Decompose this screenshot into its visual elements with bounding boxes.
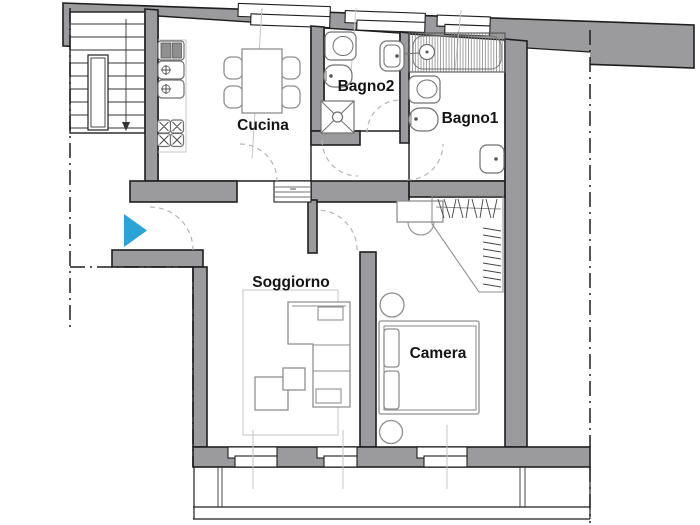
bathtub-icon bbox=[404, 33, 505, 72]
window-camera bbox=[417, 447, 467, 467]
oven-icon bbox=[158, 80, 184, 98]
washbasin-icon bbox=[480, 145, 504, 173]
camera-label: Camera bbox=[410, 345, 467, 362]
chair bbox=[224, 57, 243, 79]
bagno1-label: Bagno1 bbox=[442, 110, 499, 127]
washbasin-icon bbox=[380, 41, 404, 71]
entrance-arrow-icon bbox=[124, 214, 147, 247]
camera-door-arc bbox=[317, 210, 357, 250]
window-cucina bbox=[238, 3, 331, 27]
pillow bbox=[384, 371, 399, 409]
hall-north-wall-west bbox=[130, 181, 237, 202]
hall-north-wall-mid bbox=[311, 181, 409, 202]
bedside-table bbox=[380, 421, 403, 444]
window-bagno2 bbox=[345, 11, 426, 33]
entry-south-wall bbox=[112, 250, 203, 267]
dishwasher-icon bbox=[158, 61, 184, 79]
dining-table bbox=[242, 49, 282, 113]
neighbor-area bbox=[527, 48, 590, 447]
kitchen-counter bbox=[158, 40, 187, 152]
chair bbox=[224, 86, 243, 108]
soggiorno-west-wall bbox=[193, 267, 207, 447]
camera-furniture bbox=[379, 196, 503, 444]
coffee-tables bbox=[255, 368, 305, 410]
pillow bbox=[384, 329, 399, 367]
east-wall bbox=[505, 39, 527, 447]
double-bed bbox=[379, 321, 479, 414]
floor-plan: Cucina Bagno2 Bagno1 Soggiorno Camera bbox=[0, 0, 700, 525]
soggiorno-camera-wall bbox=[360, 252, 376, 447]
bidet-icon bbox=[409, 108, 438, 131]
chair bbox=[281, 57, 300, 79]
cucina-label: Cucina bbox=[237, 117, 289, 134]
kitchen-sink-icon bbox=[158, 41, 184, 60]
soggiorno-furniture bbox=[243, 290, 350, 435]
chair bbox=[281, 86, 300, 108]
entry-door-arc bbox=[150, 207, 193, 250]
wardrobe-hanger-ticks bbox=[438, 199, 501, 287]
cucina-west-wall bbox=[145, 9, 158, 181]
shower-icon bbox=[321, 101, 354, 133]
bagno2-label: Bagno2 bbox=[338, 78, 395, 95]
soggiorno-label: Soggiorno bbox=[252, 274, 330, 291]
bedside-table bbox=[380, 293, 404, 317]
hall-north-wall-east bbox=[409, 181, 505, 197]
toilet-icon bbox=[409, 76, 440, 103]
toilet-icon bbox=[325, 32, 356, 60]
hall-internal-window bbox=[274, 181, 311, 202]
soggiorno-east-stub-wall bbox=[308, 200, 317, 253]
floor-plan-page: Cucina Bagno2 Bagno1 Soggiorno Camera bbox=[0, 0, 700, 525]
corner-sofa bbox=[288, 302, 350, 407]
